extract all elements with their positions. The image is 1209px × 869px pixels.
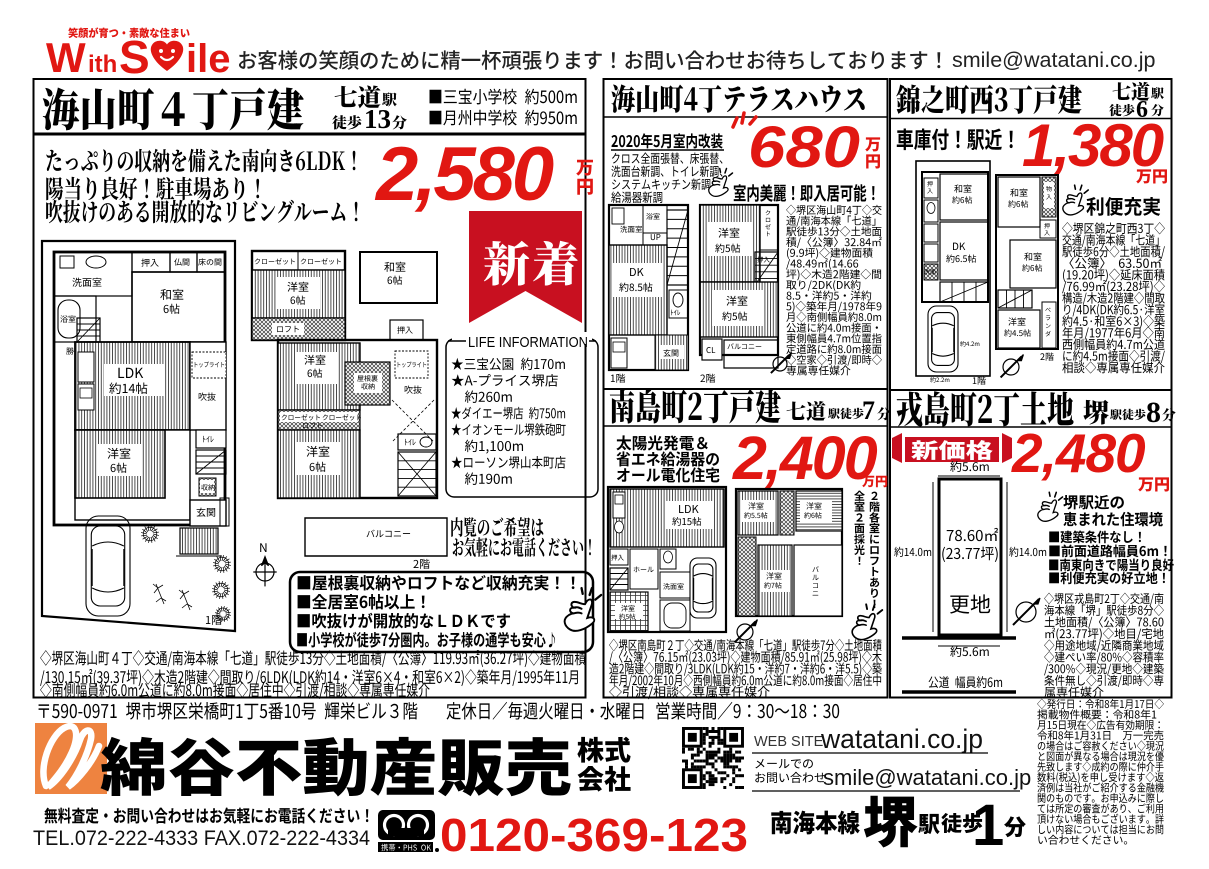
svg-text:2,480: 2,480 <box>1011 422 1146 484</box>
svg-text:8: 8 <box>1146 396 1161 429</box>
svg-text:680: 680 <box>748 115 860 180</box>
svg-text:WEB SITE: WEB SITE <box>754 734 824 750</box>
svg-text:ile: ile <box>186 37 230 81</box>
svg-text:smile@watatani.co.jp: smile@watatani.co.jp <box>952 48 1156 72</box>
svg-text:13: 13 <box>364 104 391 134</box>
svg-text:smile@watatani.co.jp: smile@watatani.co.jp <box>823 765 1031 790</box>
svg-text:LIFE INFORMATION: LIFE INFORMATION <box>468 335 588 351</box>
svg-text:1: 1 <box>972 793 1004 858</box>
svg-text:2,580: 2,580 <box>374 132 554 217</box>
svg-text:W: W <box>46 34 86 81</box>
svg-text:2,400: 2,400 <box>732 424 878 492</box>
svg-text:0120-369-123: 0120-369-123 <box>440 809 748 861</box>
svg-text:watatani.co.jp: watatani.co.jp <box>820 724 983 754</box>
svg-text:7: 7 <box>862 396 875 425</box>
svg-text:1,380: 1,380 <box>1022 112 1164 179</box>
svg-text:S: S <box>119 31 150 83</box>
svg-text:TEL.072-222-4333 FAX.072-222-4: TEL.072-222-4333 FAX.072-222-4334 <box>33 826 370 850</box>
svg-text:ith: ith <box>88 51 117 78</box>
